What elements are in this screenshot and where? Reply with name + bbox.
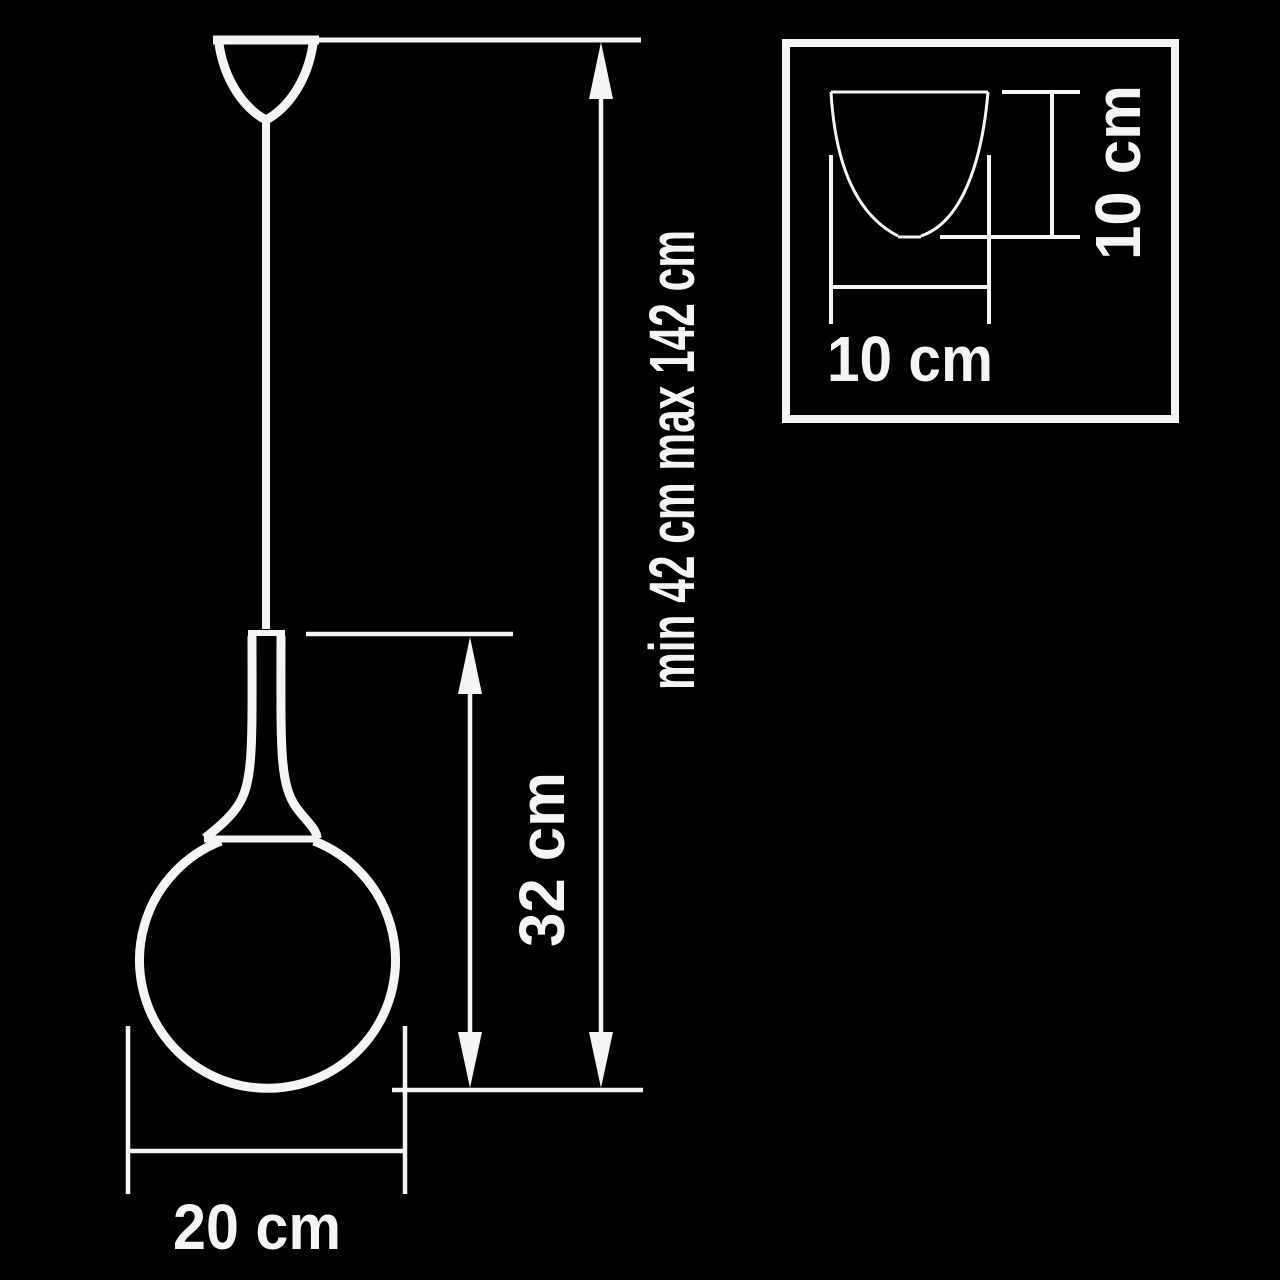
body-height-label: 32 cm — [506, 772, 578, 947]
inset-width-label: 10 cm — [827, 323, 993, 395]
arrowhead-up — [458, 637, 482, 694]
diameter-label: 20 cm — [173, 1191, 341, 1263]
diagram-canvas: min 42 cm max 142 cm 32 cm 20 cm 10 cm 1… — [0, 0, 1280, 1280]
diameter-dimension: 20 cm — [128, 1026, 405, 1263]
body-height-dimension: 32 cm — [306, 634, 643, 1090]
neck-left-outline — [205, 636, 252, 838]
lamp-drawing — [140, 40, 396, 1088]
canopy-cup-outline — [219, 44, 313, 120]
glass-sphere-outline — [140, 841, 396, 1088]
arrowhead-up — [589, 42, 613, 99]
inset-detail-view: 10 cm 10 cm — [786, 43, 1175, 419]
neck-right-outline — [281, 636, 317, 838]
arrowhead-down — [589, 1032, 613, 1088]
inset-shade-right-outline — [921, 92, 988, 236]
overall-height-label: min 42 cm max 142 cm — [636, 230, 708, 690]
inset-height-label: 10 cm — [1082, 85, 1154, 260]
pendant-lamp-dimension-diagram: min 42 cm max 142 cm 32 cm 20 cm 10 cm 1… — [0, 0, 1280, 1280]
arrowhead-down — [458, 1032, 482, 1088]
inset-shade-left-outline — [831, 92, 898, 236]
